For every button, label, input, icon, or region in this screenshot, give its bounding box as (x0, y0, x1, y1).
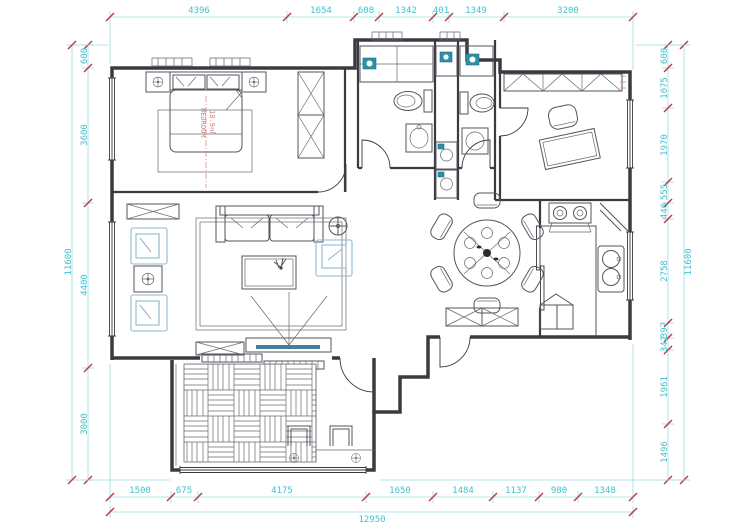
dim-label: 1650 (389, 486, 411, 496)
dim-label: 1500 (129, 486, 151, 496)
floor-plan-canvas: 4396 1654 608 1342 401 1349 3200 1500 67… (0, 0, 740, 525)
desk-chair (547, 103, 579, 130)
study-door (500, 108, 528, 136)
dim-label: 1961 (660, 376, 670, 398)
dim-label: 1970 (660, 134, 670, 156)
table-lamp-icon (153, 77, 163, 87)
bathroom-1 (360, 46, 433, 152)
balcony (176, 364, 374, 466)
dim-label: 4396 (188, 6, 210, 16)
dim-label: 3200 (557, 6, 579, 16)
entry-door (440, 337, 470, 367)
cabinet-x (196, 342, 244, 355)
wash-basin (462, 128, 488, 154)
parquet-floor (184, 364, 316, 462)
cabinet-x (127, 204, 179, 219)
dim-label: 1342 (395, 6, 417, 16)
armchair (131, 228, 167, 264)
dim-label: 4175 (271, 486, 293, 496)
study-room (504, 74, 626, 170)
balcony-door (340, 358, 374, 392)
dining-room (429, 193, 546, 326)
room-name: BEDROOM (199, 108, 207, 138)
dimension-chain-top: 4396 1654 608 1342 401 1349 3200 (106, 6, 637, 23)
rug-inner (200, 222, 342, 326)
dim-label: 401 (433, 6, 449, 16)
corner-cabinet (600, 203, 628, 231)
dim-label: 1348 (594, 486, 616, 496)
dim-label: 1484 (452, 486, 474, 496)
stool (330, 426, 352, 446)
dim-label: 600 (80, 48, 90, 64)
dim-label: 342 (660, 336, 670, 352)
toilet (460, 92, 494, 114)
armchair (131, 295, 167, 331)
tv-projection-lines (251, 292, 327, 345)
floor-drain-icon (352, 454, 361, 463)
doors (202, 108, 544, 392)
dim-label: 600 (660, 48, 670, 64)
dim-label: 675 (176, 486, 192, 496)
sofa (216, 206, 323, 242)
dim-label: 1075 (660, 77, 670, 99)
tv-cabinet (246, 338, 331, 352)
dim-label: 1349 (465, 6, 487, 16)
floor-lamp-icon (329, 217, 347, 235)
kitchen-sliding-door (537, 226, 541, 270)
side-table (134, 266, 162, 292)
dim-label: 3600 (80, 124, 90, 146)
desk (539, 129, 600, 170)
living-room (127, 204, 352, 355)
dim-total-label: 11600 (64, 248, 74, 275)
floor-drain-icon (290, 454, 299, 463)
counter-edge (540, 226, 596, 337)
tv (256, 345, 320, 349)
utility-shaft (436, 46, 457, 198)
dim-label: 1654 (310, 6, 332, 16)
dim-label: 980 (551, 486, 567, 496)
room-label-bedroom: BEDROOM 18.9㎡ (199, 108, 216, 138)
wardrobe (504, 74, 622, 91)
bathroom-2 (460, 46, 494, 154)
dimension-chain-right: 600 1075 1970 555 446 2758 397 342 1961 … (660, 41, 694, 484)
dim-label: 555 (660, 184, 670, 200)
sideboard-x (446, 308, 518, 326)
dim-total-label: 12950 (358, 515, 385, 525)
refrigerator (540, 294, 573, 329)
dim-label: 446 (660, 203, 670, 219)
dining-table (454, 220, 520, 286)
coffee-table (242, 256, 296, 289)
gas-stove (549, 203, 591, 232)
bedroom-door (318, 164, 346, 192)
wardrobe (298, 72, 324, 158)
floor-plan-drawing: 4396 1654 608 1342 401 1349 3200 1500 67… (0, 0, 740, 525)
dim-total-label: 11600 (684, 248, 694, 275)
kitchen-sink (598, 246, 624, 292)
dim-label: 397 (660, 322, 670, 338)
dim-label: 2758 (660, 260, 670, 282)
toilet (394, 90, 432, 112)
dim-label: 1496 (660, 441, 670, 463)
dim-label: 1137 (505, 486, 527, 496)
dim-label: 4400 (80, 274, 90, 296)
wash-basin (406, 124, 432, 152)
bedroom: BEDROOM 18.9㎡ (146, 72, 324, 188)
dimension-chain-bottom: 1500 675 4175 1650 1484 1137 980 1348 12… (106, 486, 637, 525)
armchair (316, 240, 352, 276)
bathroom1-door (362, 140, 390, 168)
kitchen (540, 203, 628, 337)
dim-label: 608 (358, 6, 374, 16)
table-lamp-icon (249, 77, 259, 87)
dimension-chain-left: 600 3600 4400 3000 11600 (64, 41, 94, 484)
dim-label: 3000 (80, 413, 90, 435)
room-area: 18.9㎡ (208, 110, 216, 134)
wall-marker-red (620, 76, 626, 88)
